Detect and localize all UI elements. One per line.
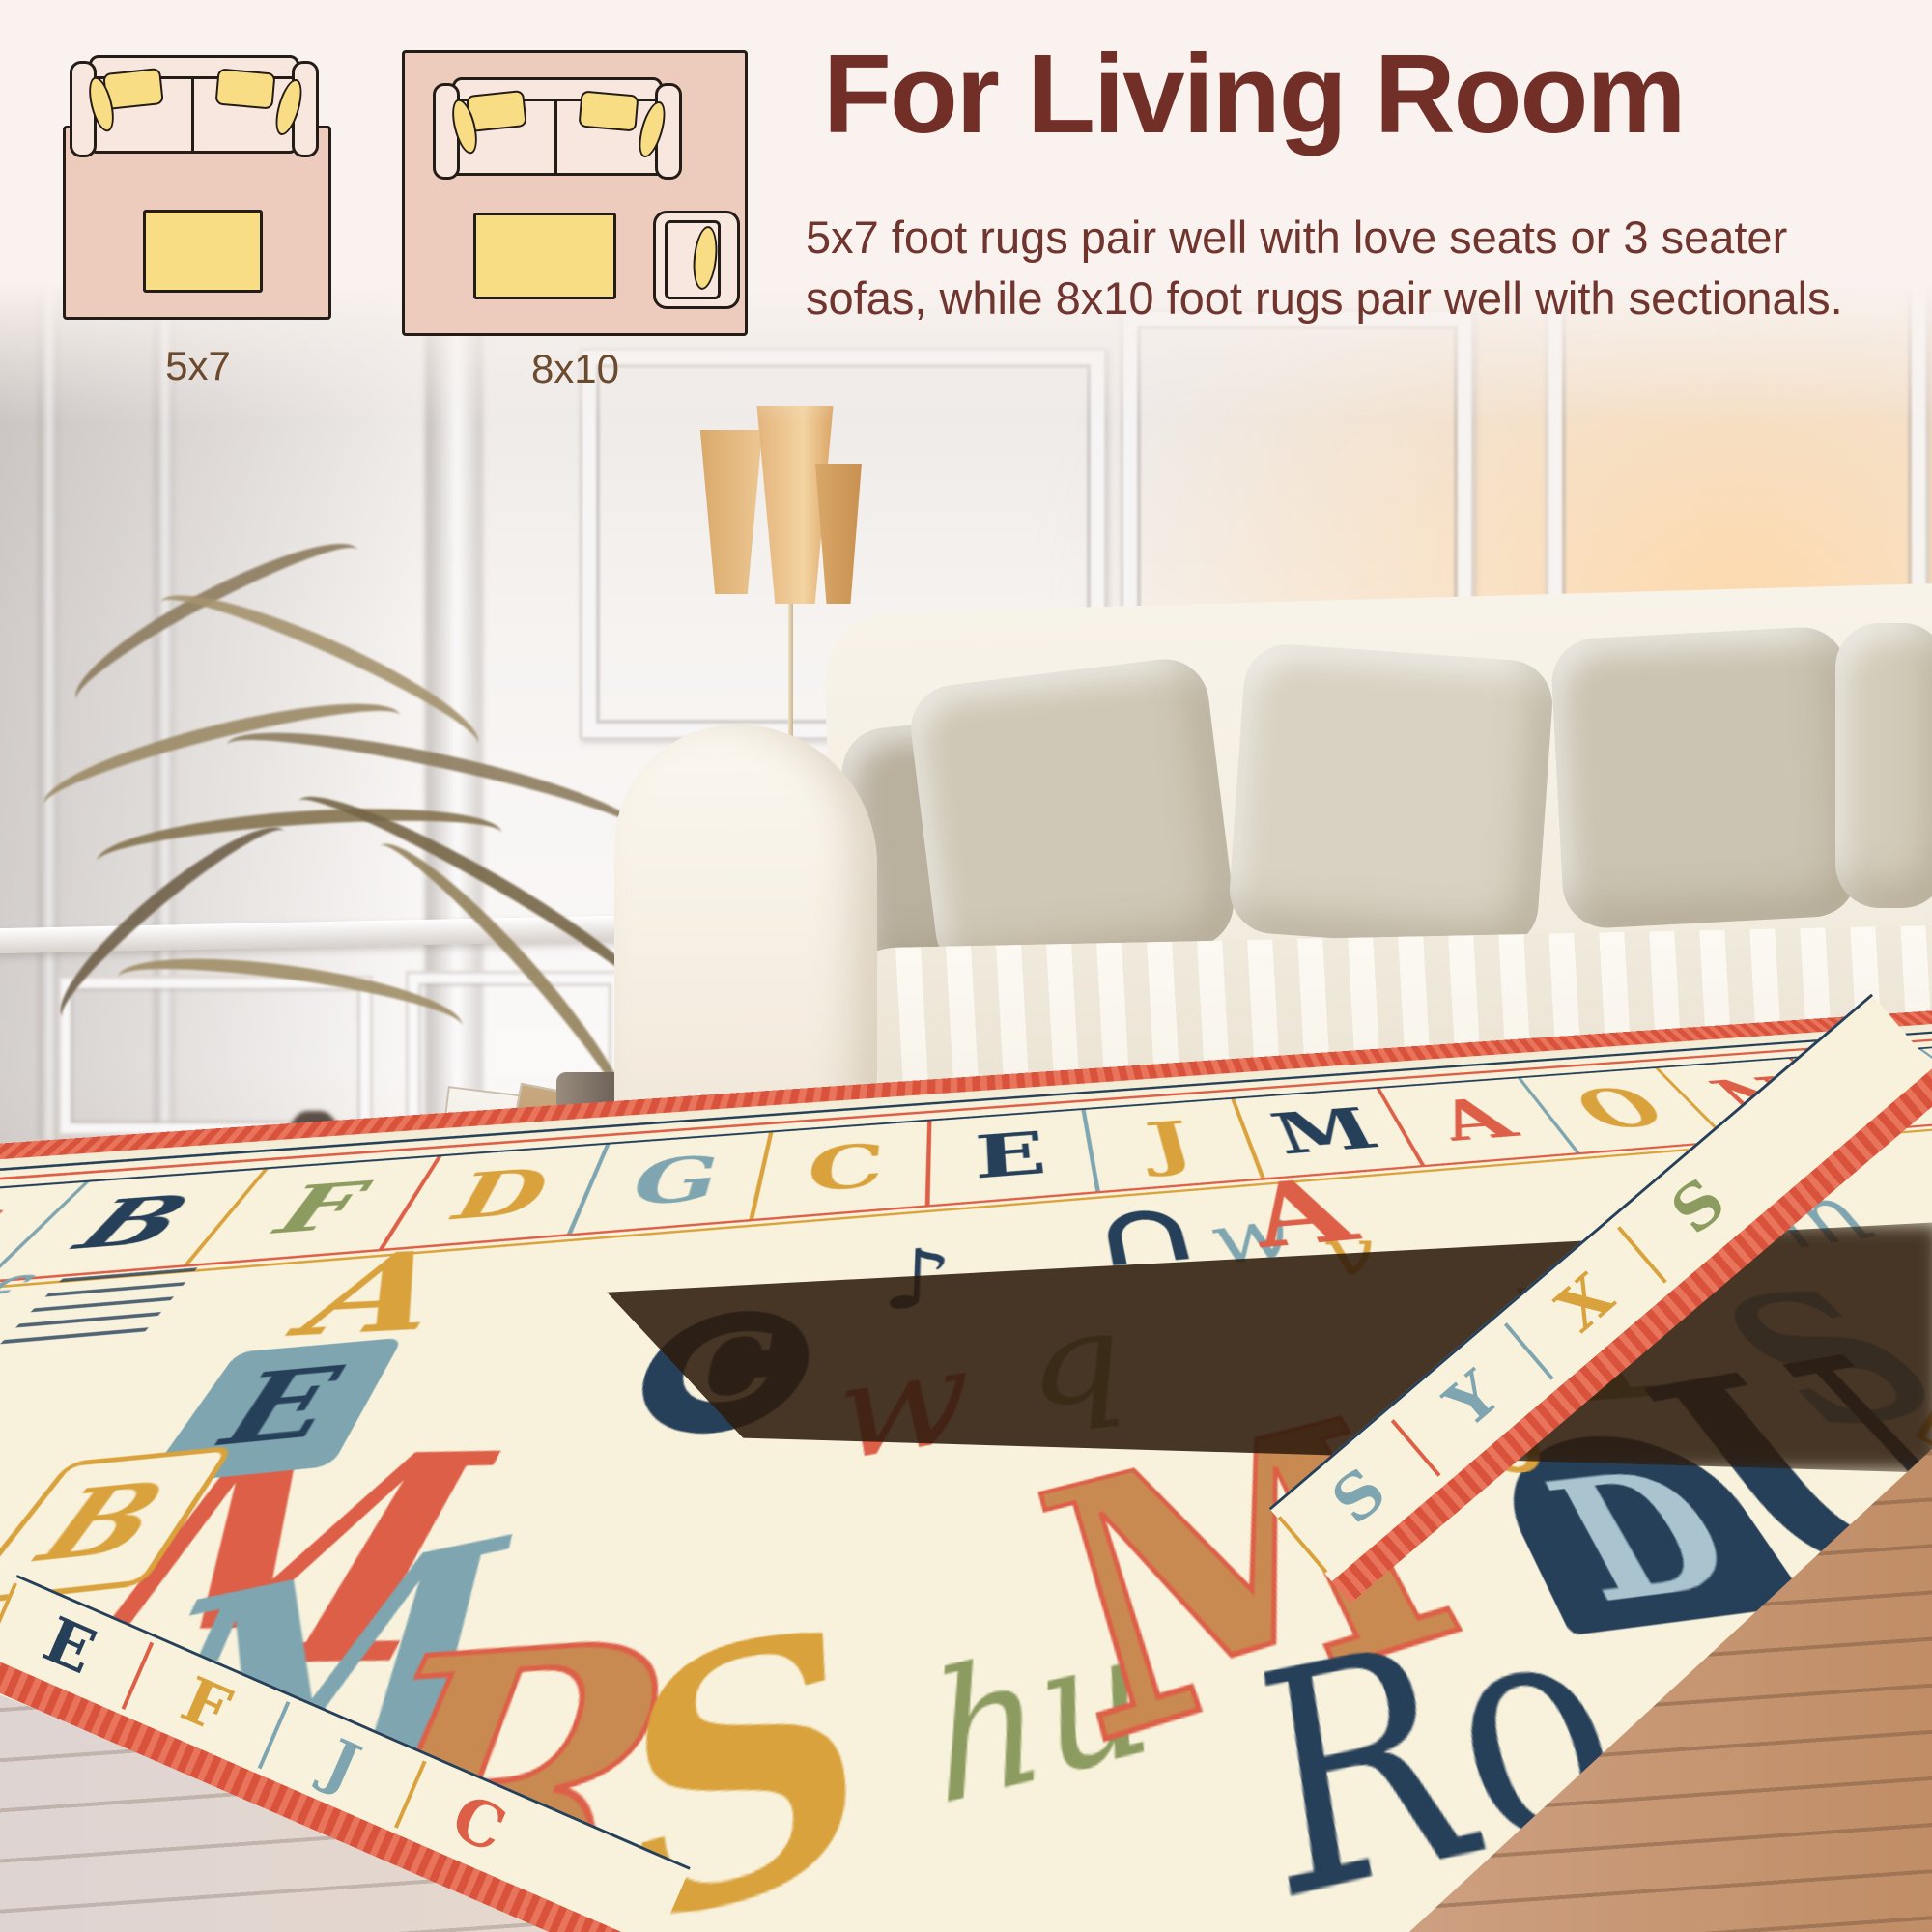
sofa-pillow — [1227, 641, 1555, 952]
rug-border-tile: E — [925, 1110, 1095, 1205]
rug-size-diagram-8x10: 8x10 — [394, 39, 756, 386]
diagram-coffee-table — [143, 210, 263, 293]
diagram-sofa — [433, 77, 682, 179]
size-label-8x10: 8x10 — [394, 346, 756, 392]
rug-border-tile: C — [749, 1122, 927, 1219]
banner-title: For Living Room — [823, 29, 1685, 158]
diagram-coffee-table — [473, 213, 616, 299]
size-label-5x7: 5x7 — [58, 343, 338, 389]
rug-border-tile: J — [1081, 1099, 1261, 1191]
diagram-loveseat — [70, 55, 319, 156]
yellow-pillow — [214, 68, 275, 109]
sofa-pillow — [1835, 623, 1932, 908]
sofa-pillow — [1549, 625, 1859, 930]
info-banner: 5x7 8x10 For Livin — [0, 0, 1932, 425]
description-line-2: sofas, while 8x10 foot rugs pair well wi… — [806, 272, 1843, 324]
sofa-pillow — [906, 654, 1238, 979]
description-line-1: 5x7 foot rugs pair well with love seats … — [806, 212, 1787, 263]
product-image: ECBFDGCEJMAONSGME AfAgwMMRDJECwqBShuMRoD… — [0, 0, 1932, 1932]
rug-size-diagram-5x7: 5x7 — [58, 53, 338, 386]
banner-description: 5x7 foot rugs pair well with love seats … — [806, 207, 1926, 328]
diagram-armchair — [653, 211, 738, 307]
yellow-pillow — [578, 90, 639, 131]
